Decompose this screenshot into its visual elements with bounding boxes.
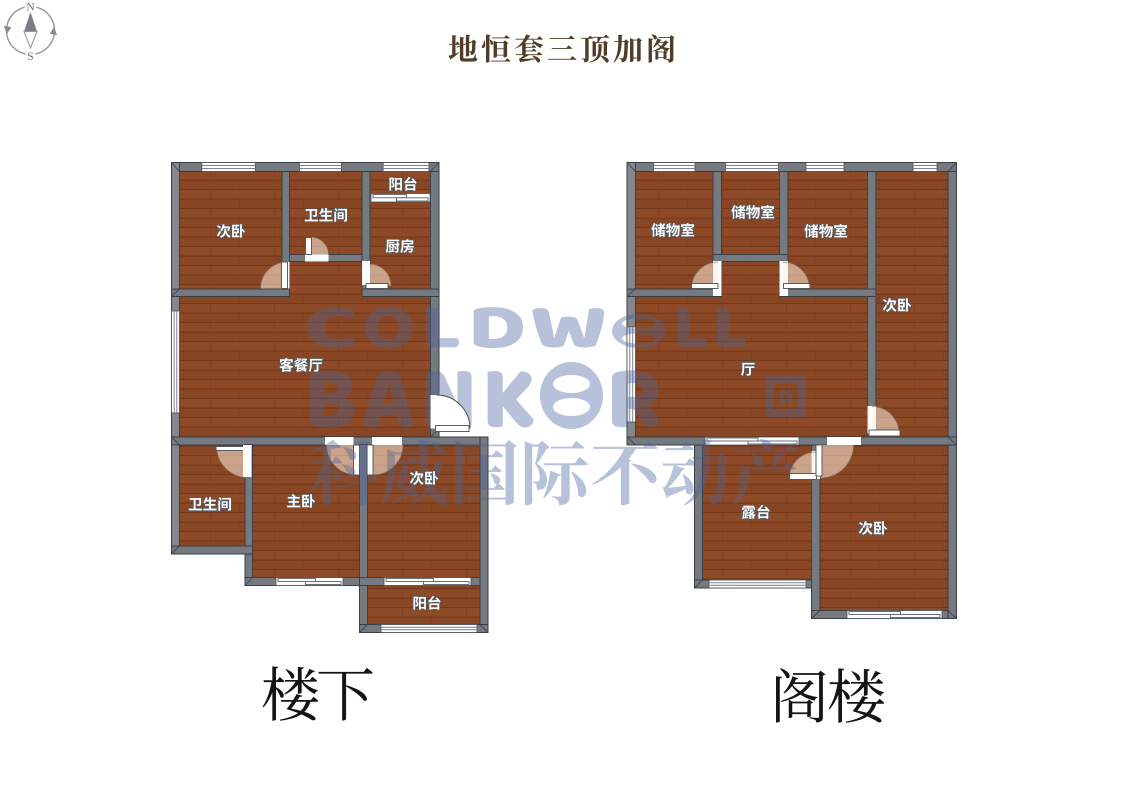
svg-text:S: S bbox=[27, 51, 33, 63]
svg-text:N: N bbox=[26, 2, 35, 14]
